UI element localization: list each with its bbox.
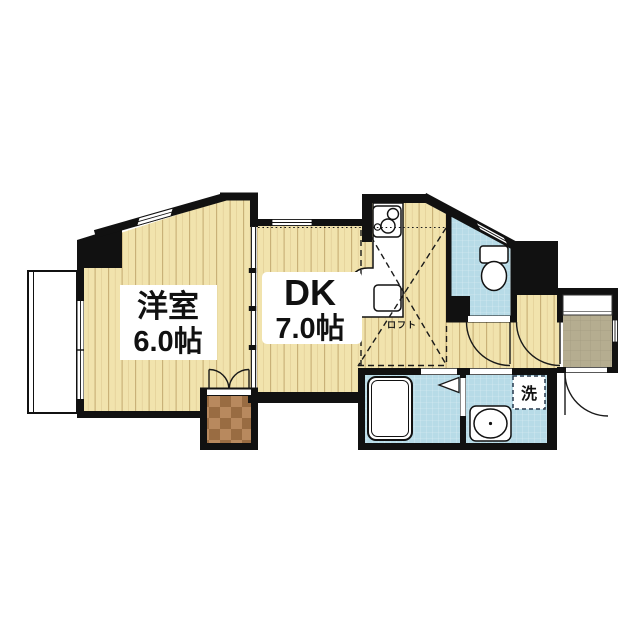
loft-label: ロフト bbox=[387, 320, 417, 330]
wall-segment bbox=[547, 368, 557, 450]
bathtub-icon bbox=[368, 377, 412, 440]
washroom-door-gap bbox=[470, 369, 512, 375]
wall-segment bbox=[558, 288, 618, 295]
western-room-size: 6.0帖 bbox=[133, 325, 202, 358]
wall-segment bbox=[77, 411, 207, 418]
bath-door-gap bbox=[421, 369, 457, 375]
kitchen-sink bbox=[374, 285, 401, 311]
wall-segment bbox=[362, 194, 426, 203]
washing-machine-space: 洗 bbox=[513, 376, 545, 409]
closet-floor bbox=[207, 395, 251, 443]
floorplan-drawing: 洗 洋室 6.0帖 DK 7.0帖 ロフト bbox=[0, 0, 640, 640]
dk-size: 7.0帖 bbox=[275, 312, 344, 345]
dk-label: DK 7.0帖 bbox=[262, 272, 362, 345]
wall-segment bbox=[251, 388, 258, 450]
toilet-door-gap bbox=[468, 316, 510, 322]
closet-threshold bbox=[207, 390, 251, 396]
entrance-door-swing bbox=[565, 373, 608, 416]
wall-segment bbox=[358, 368, 557, 375]
laundry-label: 洗 bbox=[521, 384, 537, 403]
wall-segment bbox=[446, 210, 452, 323]
wall-segment bbox=[250, 193, 258, 227]
wall-segment bbox=[514, 241, 558, 295]
toilet-icon bbox=[480, 246, 508, 291]
wall-segment bbox=[200, 388, 207, 450]
wall-segment bbox=[358, 368, 365, 450]
entrance-door-gap bbox=[566, 368, 607, 373]
bath-divider-door-gap bbox=[461, 378, 466, 416]
wall-segment bbox=[451, 296, 470, 323]
wall-segment bbox=[557, 295, 563, 323]
balcony bbox=[28, 271, 77, 413]
balcony-window-icon bbox=[78, 301, 84, 399]
wall-segment bbox=[248, 392, 364, 403]
dk-window-icon bbox=[272, 220, 312, 226]
washbasin-icon bbox=[470, 406, 511, 441]
western-room-name: 洋室 bbox=[137, 289, 199, 324]
wall-segment bbox=[358, 443, 557, 450]
western-room-label: 洋室 6.0帖 bbox=[120, 285, 217, 360]
entrance-side-window-icon bbox=[613, 320, 618, 342]
wall-segment bbox=[200, 443, 258, 450]
floorplan-page: 洗 洋室 6.0帖 DK 7.0帖 ロフト bbox=[0, 0, 640, 640]
shoe-cabinet bbox=[563, 295, 612, 315]
dk-name: DK bbox=[284, 272, 336, 313]
stove-icon bbox=[373, 206, 401, 237]
entrance-tile bbox=[563, 315, 612, 367]
